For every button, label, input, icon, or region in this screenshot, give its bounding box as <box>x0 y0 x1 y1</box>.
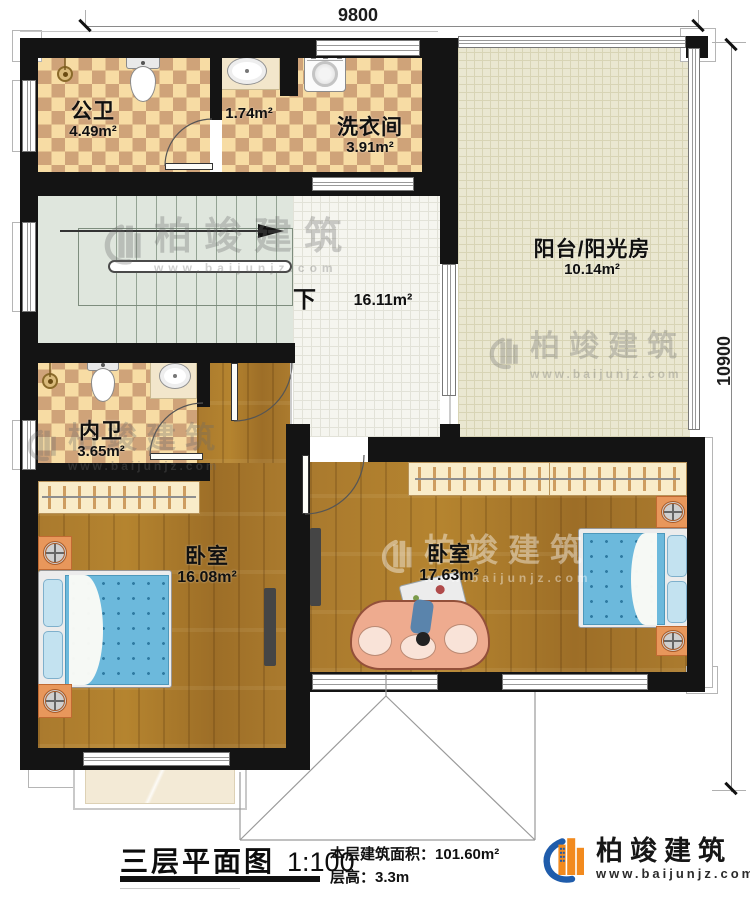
dim-top-value: 9800 <box>303 5 413 26</box>
floor-stats: 本层建筑面积：101.60m² 层高：3.3m <box>330 844 499 889</box>
nightstand <box>38 684 72 718</box>
lamp <box>43 541 67 565</box>
nightstand <box>38 536 72 570</box>
window-laundry <box>316 40 420 56</box>
door-leaf-bedroom1 <box>231 363 238 421</box>
room-label-public-bath: 公卫 4.49m² <box>69 100 117 140</box>
plan-title: 三层平面图 <box>120 840 275 880</box>
outer-face-line-top <box>20 31 438 32</box>
lamp <box>661 501 685 524</box>
pillow <box>667 581 687 623</box>
bed-bedroom2 <box>578 528 690 628</box>
room-area: 10.14m² <box>534 262 651 279</box>
room-label-sunroom: 阳台/阳光房 10.14m² <box>534 238 651 278</box>
sink-basin <box>227 57 267 85</box>
sunroom-glass-north <box>458 36 686 48</box>
nightstand <box>656 626 690 656</box>
stair-handrail <box>108 260 292 273</box>
brand-logo-block: 柏竣建筑 www.baijunjz.com <box>540 830 750 888</box>
room-label-bedroom2: 卧室 17.63m² <box>419 543 479 584</box>
room-area: 1.74m² <box>225 106 273 123</box>
faucet-dot <box>173 374 177 378</box>
washer-drum <box>312 61 338 87</box>
dim-line-top <box>85 26 698 27</box>
wardrobe-divider <box>549 463 550 495</box>
room-name: 卧室 <box>419 543 479 567</box>
flower-decor <box>435 584 446 595</box>
floor-hall <box>293 196 440 437</box>
wardrobe-bedroom2 <box>408 462 687 496</box>
room-label-inner-bath: 内卫 3.65m² <box>77 420 125 460</box>
wall-hall-sunroom <box>440 196 458 264</box>
window-bedroom2-b <box>502 674 648 690</box>
wall-bedroom2-east <box>687 437 705 692</box>
pillow <box>667 535 687 577</box>
faucet-dot <box>245 69 249 73</box>
window-innerbath <box>22 420 36 470</box>
floor-plan: 公卫 4.49m² 1.74m² 洗衣间 3.91m² 阳台/阳光房 10.14… <box>0 0 750 902</box>
room-area: 17.63m² <box>419 567 479 585</box>
bed-bedroom1 <box>38 570 172 688</box>
sheet-fold <box>631 533 657 625</box>
wall-laundry-east <box>422 38 458 196</box>
floor-area-label: 本层建筑面积： <box>330 846 435 863</box>
room-name: 卧室 <box>177 545 237 569</box>
room-label-laundry: 洗衣间 3.91m² <box>337 116 403 156</box>
floor-area-value: 101.60m² <box>435 846 499 863</box>
plan-title-block: 三层平面图 1:100 <box>120 840 355 880</box>
brand-logo-icon <box>540 830 588 888</box>
wall-stairs-south <box>20 343 295 363</box>
tv-bedroom1 <box>264 588 276 666</box>
shower-drain-inner <box>42 373 58 389</box>
nightstand <box>656 496 690 528</box>
lamp <box>661 630 685 651</box>
laundry-sliding-door <box>312 177 414 191</box>
floor-bedroom1-vestibule <box>197 363 290 463</box>
wardrobe-bedroom1 <box>38 481 200 514</box>
sink-basin <box>159 363 191 389</box>
sunroom-sliding-door <box>442 264 456 396</box>
hall-area-label: 16.11m² <box>354 292 413 310</box>
brand-url: www.baijunjz.com <box>596 866 750 881</box>
floor-area-row: 本层建筑面积：101.60m² <box>330 844 499 867</box>
room-name: 公卫 <box>69 100 117 124</box>
washing-machine <box>304 52 346 92</box>
down-text: 下 <box>293 287 317 313</box>
tv-bedroom2 <box>310 528 321 606</box>
wall-publicbath-east <box>210 57 222 120</box>
wall-innerbath-east <box>197 356 210 407</box>
dim-ext <box>712 790 746 791</box>
floor-height-row: 层高：3.3m <box>330 867 499 890</box>
wall-innerbath-south <box>20 463 210 481</box>
pillow <box>43 631 63 679</box>
room-name: 阳台/阳光房 <box>534 238 651 262</box>
balcony-sliding-door <box>83 752 230 766</box>
floor-height-value: 3.3m <box>375 869 409 886</box>
window-stairs <box>22 222 36 312</box>
window-bedroom2-a <box>312 674 438 690</box>
shower-drain-public <box>57 66 73 82</box>
room-label-bedroom1: 卧室 16.08m² <box>177 545 237 586</box>
pillow <box>43 579 63 627</box>
room-area: 4.49m² <box>69 124 117 141</box>
room-name: 洗衣间 <box>337 116 403 140</box>
door-leaf-innerbath <box>150 453 203 460</box>
room-area: 16.08m² <box>177 569 237 587</box>
wardrobe-rod <box>42 496 196 498</box>
dim-right-value: 10900 <box>714 318 732 404</box>
brand-name: 柏竣建筑 <box>596 837 750 867</box>
brand-text-block: 柏竣建筑 www.baijunjz.com <box>596 837 750 882</box>
lamp <box>43 689 67 713</box>
door-leaf-publicbath <box>165 163 213 170</box>
drain-core <box>63 72 68 77</box>
floor-height-label: 层高： <box>330 869 375 886</box>
wardrobe-rod <box>415 478 681 480</box>
toilet-bowl <box>91 368 115 402</box>
title-underline <box>120 876 320 882</box>
room-area: 16.11m² <box>354 292 413 310</box>
dim-line-right <box>731 45 732 792</box>
flush-button <box>101 363 105 367</box>
toilet-public <box>126 54 160 102</box>
title-underline-thin <box>120 888 240 889</box>
room-name: 内卫 <box>77 420 125 444</box>
door-leaf-bedroom2 <box>302 455 309 514</box>
person-head <box>416 632 430 646</box>
sofa-cushion <box>358 626 392 656</box>
flush-button <box>141 61 145 65</box>
stairs-down-label: 下 <box>293 287 317 313</box>
room-label-vestibule: 1.74m² <box>225 106 273 123</box>
sofa-group <box>350 590 490 670</box>
drain-core <box>48 379 53 384</box>
room-area: 3.91m² <box>337 140 403 157</box>
sunroom-glass-east <box>688 48 700 430</box>
room-area: 3.65m² <box>77 444 125 461</box>
window-publicbath <box>22 80 36 152</box>
wall-bedroom2-north <box>368 437 703 462</box>
toilet-bowl <box>130 66 156 102</box>
wall-vestibule-stub <box>280 38 298 96</box>
sofa-cushion <box>444 624 478 654</box>
balcony-floor <box>85 768 235 804</box>
